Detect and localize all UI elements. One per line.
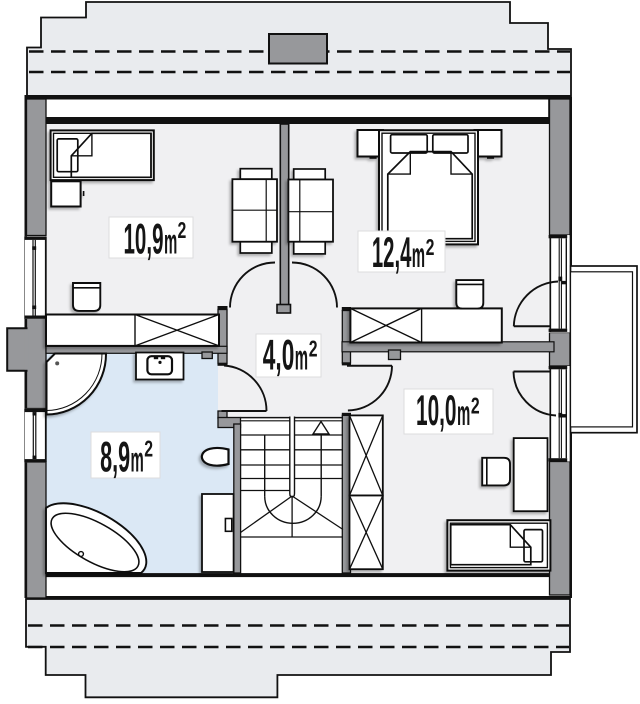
- svg-text:2: 2: [309, 336, 318, 362]
- svg-text:2: 2: [178, 217, 187, 243]
- svg-text:m: m: [164, 223, 177, 262]
- svg-text:m: m: [131, 441, 144, 480]
- svg-text:8,9: 8,9: [100, 434, 130, 482]
- svg-text:10,0: 10,0: [416, 387, 457, 435]
- svg-text:m: m: [412, 236, 425, 275]
- svg-text:m: m: [457, 394, 470, 433]
- svg-text:10,9: 10,9: [124, 216, 164, 264]
- svg-text:m: m: [295, 339, 308, 378]
- svg-text:2: 2: [144, 436, 153, 462]
- svg-text:12,4: 12,4: [372, 229, 412, 277]
- svg-text:4,0: 4,0: [263, 332, 295, 380]
- svg-text:2: 2: [471, 393, 480, 419]
- svg-text:2: 2: [426, 234, 435, 260]
